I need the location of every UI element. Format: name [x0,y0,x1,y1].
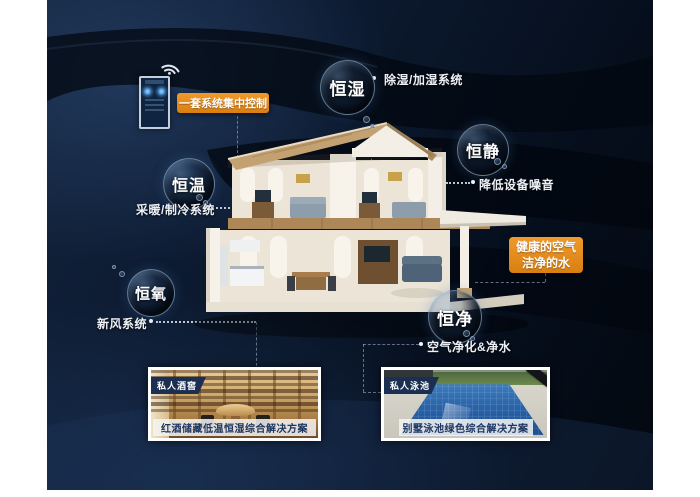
infographic-canvas: 一套系统集中控制 恒湿 除湿/加湿系统 恒静 降低设备噪音 恒温 采暖/制冷系统… [0,0,700,497]
wine-tasting-table [216,404,254,416]
phone-screen-row [145,99,164,101]
bubble-constant-quiet: 恒静 [457,124,509,176]
bubble-constant-oxygen: 恒氧 [127,269,175,317]
mini-bubble [463,330,470,337]
card-wine-cellar: 私人酒窖 红酒储藏低温恒湿综合解决方案 [148,367,321,441]
wine-cellar-tag: 私人酒窖 [151,377,206,394]
leader-dot-quiet [471,180,475,184]
mini-bubble [119,271,125,277]
healthy-air-line: 健康的空气 [516,239,576,255]
label-fresh-air-system: 新风系统 [97,315,147,332]
pool-photo: 私人泳池 别墅泳池绿色综合解决方案 [384,370,547,438]
wine-cellar-photo: 私人酒窖 红酒储藏低温恒湿综合解决方案 [151,370,318,438]
connector-clean-to-pool-card [363,392,381,393]
dial-icon [143,87,152,96]
phone-screen-row [145,104,164,106]
phone-screen-row [145,109,164,111]
dial-icon [157,87,166,96]
smart-controller-phone [139,76,170,129]
central-control-label: 一套系统集中控制 [177,93,269,113]
leader-dot-oxygen [149,319,153,323]
mini-bubble [502,164,507,169]
bubble-constant-humidity: 恒湿 [320,60,375,115]
label-noise-reduction: 降低设备噪音 [479,176,554,193]
healthy-air-water-box: 健康的空气 洁净的水 [509,237,583,273]
clean-water-line: 洁净的水 [522,255,570,271]
card-private-pool: 私人泳池 别墅泳池绿色综合解决方案 [381,367,550,441]
pool-caption: 别墅泳池绿色综合解决方案 [399,419,533,436]
label-humidity-system: 除湿/加湿系统 [384,71,463,88]
phone-screen-titlebar [145,80,164,84]
connector-waterbox-vertical [545,273,546,282]
mini-bubble [494,158,501,165]
leader-dot-clean [419,342,423,346]
mini-bubble [196,194,203,201]
mini-bubble [363,116,370,123]
phone-screen-dials [141,87,168,96]
label-purification-system: 空气净化&净水 [427,338,511,355]
wine-cellar-caption: 红酒储藏低温恒湿综合解决方案 [153,419,316,436]
label-hvac-system: 采暖/制冷系统 [136,201,215,218]
pool-tag: 私人泳池 [384,377,439,394]
mini-bubble [370,124,375,129]
mini-bubble [112,265,116,269]
